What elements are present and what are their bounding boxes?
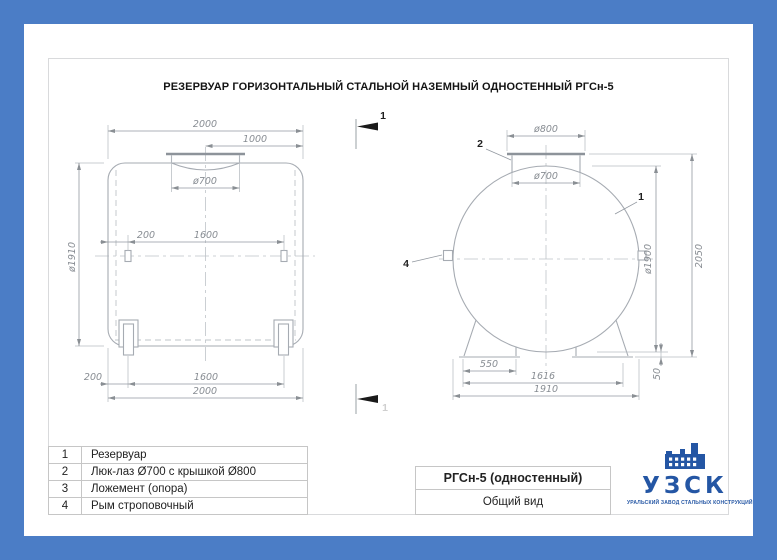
saddle-left [459, 320, 520, 357]
dim-eye-span: 1600 [194, 230, 218, 241]
callout-tank: 1 [638, 191, 644, 203]
dim-cover: ø800 [533, 124, 558, 135]
dim-support-offset: 200 [84, 372, 102, 383]
dim-manhole: ø700 [192, 176, 217, 187]
dim-clearance: 50 [652, 368, 663, 380]
dim-neck: ø700 [533, 171, 558, 182]
logo-abbr: УЗСК [627, 475, 743, 498]
table-row: 4 Рым строповочный [49, 498, 308, 515]
saddle-right [572, 320, 633, 357]
model-name: РГСн-5 (одностенный) [416, 467, 610, 490]
dim-eye-offset: 200 [137, 230, 155, 241]
section-arrow-bottom [357, 395, 378, 403]
dim-shell-diameter-side: ø1910 [67, 242, 78, 273]
part-number: 3 [49, 481, 82, 498]
part-number: 2 [49, 464, 82, 481]
dim-base: 1910 [534, 384, 558, 395]
section-label-top: 1 [380, 110, 386, 122]
section-arrow-top [357, 123, 378, 131]
part-name: Рым строповочный [82, 498, 308, 515]
support-legs-side [119, 320, 293, 355]
dim-length-bottom: 2000 [193, 386, 217, 397]
table-row: 2 Люк-лаз Ø700 с крышкой Ø800 [49, 464, 308, 481]
screenshot-root: { "page_title": "РЕЗЕРВУАР ГОРИЗОНТАЛЬНЫ… [0, 0, 777, 560]
dim-support-span: 1600 [194, 372, 218, 383]
table-row: 1 Резервуар [49, 447, 308, 464]
side-view: 2000 1000 ø700 200 1600 [67, 119, 315, 402]
drawing-frame: РЕЗЕРВУАР ГОРИЗОНТАЛЬНЫЙ СТАЛЬНОЙ НАЗЕМН… [48, 58, 729, 515]
parts-table: 1 Резервуар 2 Люк-лаз Ø700 с крышкой Ø80… [48, 446, 308, 515]
logo-tagline: УРАЛЬСКИЙ ЗАВОД СТАЛЬНЫХ КОНСТРУКЦИЙ [627, 500, 743, 506]
factory-icon [663, 442, 707, 469]
dim-half-length: 1000 [243, 134, 267, 145]
lifting-eye-left [125, 251, 131, 262]
part-name: Резервуар [82, 447, 308, 464]
drawing-sheet: РЕЗЕРВУАР ГОРИЗОНТАЛЬНЫЙ СТАЛЬНОЙ НАЗЕМН… [24, 24, 753, 536]
lifting-eye-end-left [444, 251, 453, 261]
dim-height: 2050 [694, 244, 705, 268]
dim-saddle-span: 1616 [531, 371, 555, 382]
part-number: 1 [49, 447, 82, 464]
callout-eye: 4 [403, 258, 409, 270]
section-marks: 1 1 [356, 110, 388, 414]
dim-shell-diameter-end: ø1900 [643, 244, 654, 275]
view-name: Общий вид [416, 490, 610, 514]
lifting-eye-right [281, 251, 287, 262]
part-number: 4 [49, 498, 82, 515]
end-view: 2 1 4 ø800 ø700 ø1900 [403, 124, 705, 400]
section-label-bottom: 1 [382, 402, 388, 414]
uzsk-logo: УЗСК УРАЛЬСКИЙ ЗАВОД СТАЛЬНЫХ КОНСТРУКЦИ… [627, 442, 743, 506]
title-block: РГСн-5 (одностенный) Общий вид [415, 466, 611, 515]
dim-saddle: 550 [480, 359, 498, 370]
dim-length-top: 2000 [193, 119, 217, 130]
callout-hatch: 2 [477, 138, 483, 150]
table-row: 3 Ложемент (опора) [49, 481, 308, 498]
part-name: Люк-лаз Ø700 с крышкой Ø800 [82, 464, 308, 481]
part-name: Ложемент (опора) [82, 481, 308, 498]
